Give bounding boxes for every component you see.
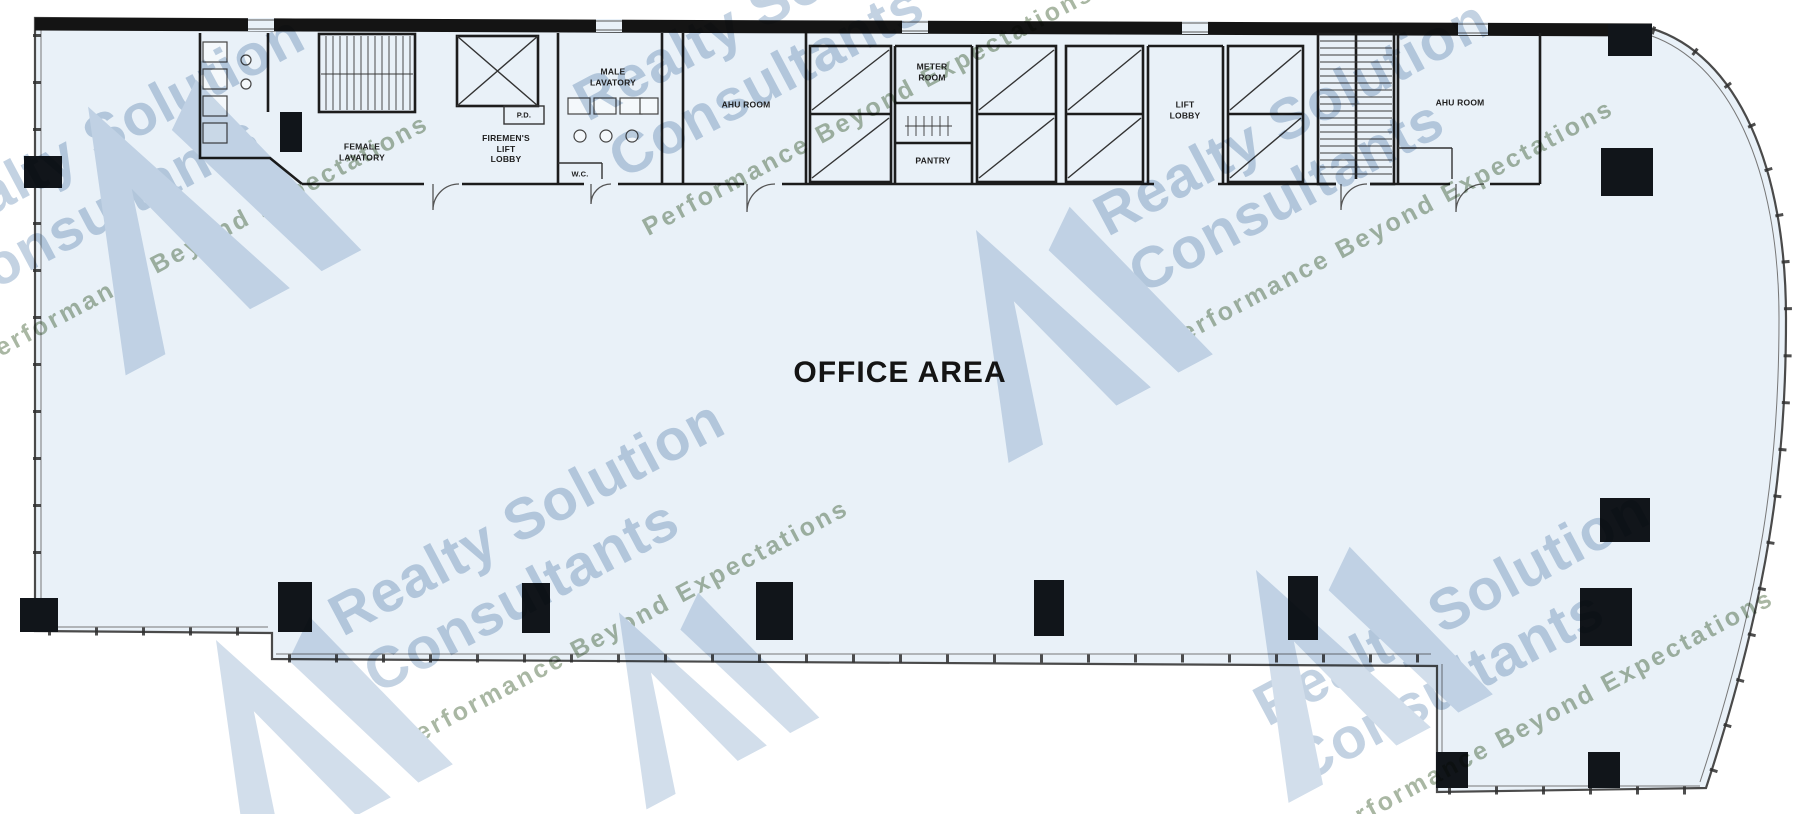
room-label-female-lavatory: FEMALE LAVATORY: [339, 141, 385, 162]
room-label-ahu-room-right: AHU ROOM: [1436, 98, 1485, 109]
room-label-lift-lobby: LIFT LOBBY: [1170, 99, 1201, 120]
room-label-pantry: PANTRY: [915, 156, 950, 167]
room-label-pd: P.D.: [517, 110, 531, 119]
floor-plan-drawing: [0, 0, 1800, 814]
office-area-label: OFFICE AREA: [793, 356, 1006, 390]
room-label-meter-room: METER ROOM: [917, 61, 948, 82]
room-label-firemens-lift-lobby: FIREMEN'S LIFT LOBBY: [482, 133, 530, 165]
room-label-ahu-room-left: AHU ROOM: [722, 100, 771, 111]
top-wall: [35, 24, 1652, 30]
floor-plan-page: Realty Solution Consultants Performance …: [0, 0, 1800, 814]
room-label-wc: W.C.: [571, 169, 588, 178]
room-label-male-lavatory: MALE LAVATORY: [590, 66, 636, 87]
